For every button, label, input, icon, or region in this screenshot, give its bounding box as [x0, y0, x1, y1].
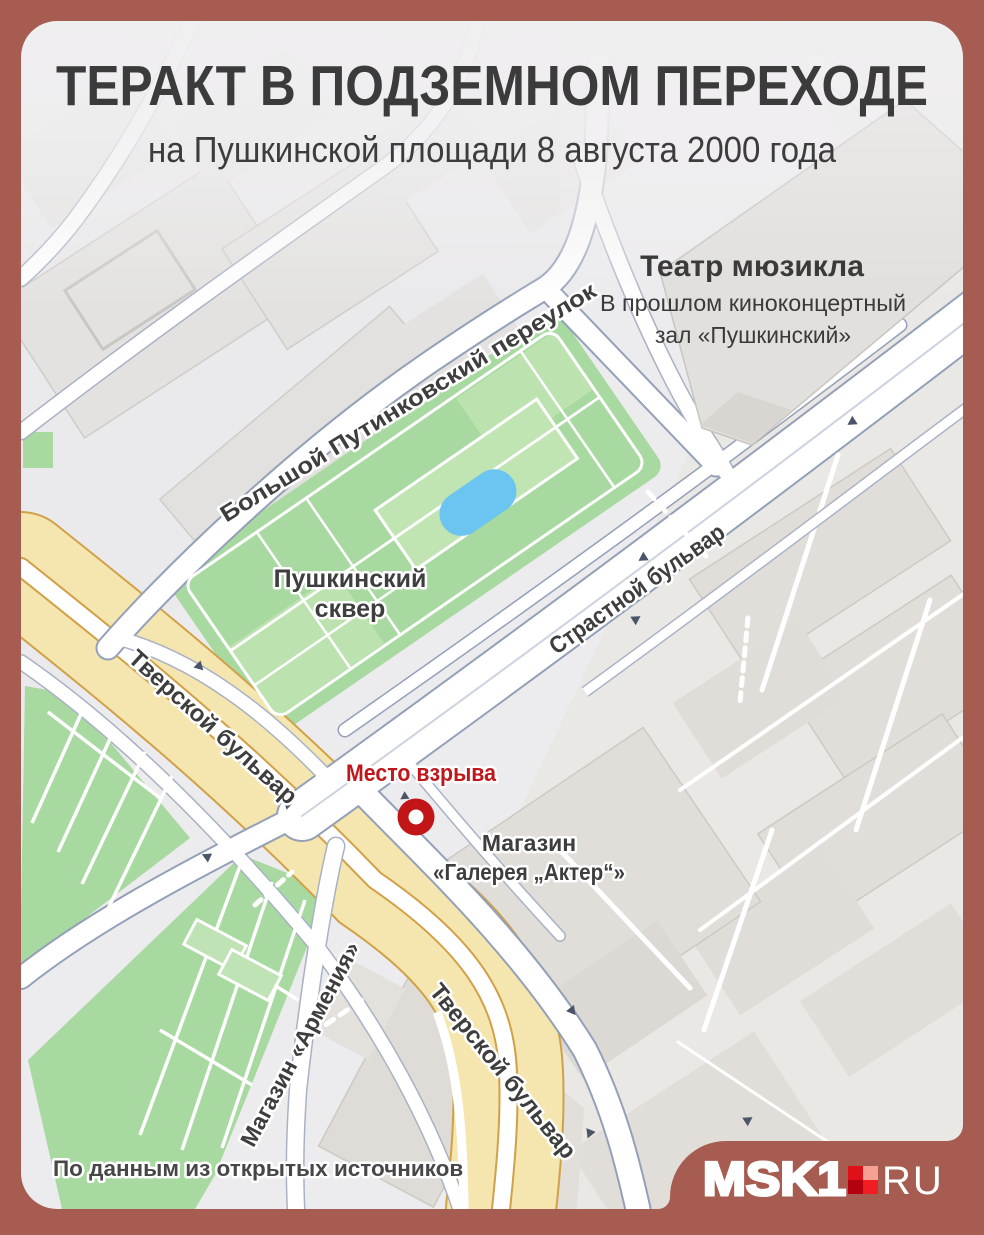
- svg-text:MSK1: MSK1: [703, 1152, 846, 1205]
- svg-text:ТЕРАКТ В ПОДЗЕМНОМ ПЕРЕХОДЕ: ТЕРАКТ В ПОДЗЕМНОМ ПЕРЕХОДЕ: [56, 54, 928, 118]
- svg-text:на Пушкинской площади 8 август: на Пушкинской площади 8 августа 2000 год…: [148, 129, 837, 170]
- svg-text:сквер: сквер: [315, 595, 386, 623]
- svg-text:«Галерея „Актер“»: «Галерея „Актер“»: [433, 859, 625, 885]
- svg-text:Место взрыва: Место взрыва: [346, 760, 496, 787]
- svg-text:зал «Пушкинский»: зал «Пушкинский»: [655, 322, 851, 348]
- svg-text:В прошлом киноконцертный: В прошлом киноконцертный: [600, 290, 906, 316]
- svg-text:По данным из открытых источник: По данным из открытых источников: [53, 1156, 463, 1181]
- svg-text:RU: RU: [882, 1159, 944, 1203]
- svg-text:Магазин: Магазин: [482, 830, 576, 856]
- svg-text:Театр мюзикла: Театр мюзикла: [640, 250, 864, 283]
- svg-text:Пушкинский: Пушкинский: [274, 565, 427, 593]
